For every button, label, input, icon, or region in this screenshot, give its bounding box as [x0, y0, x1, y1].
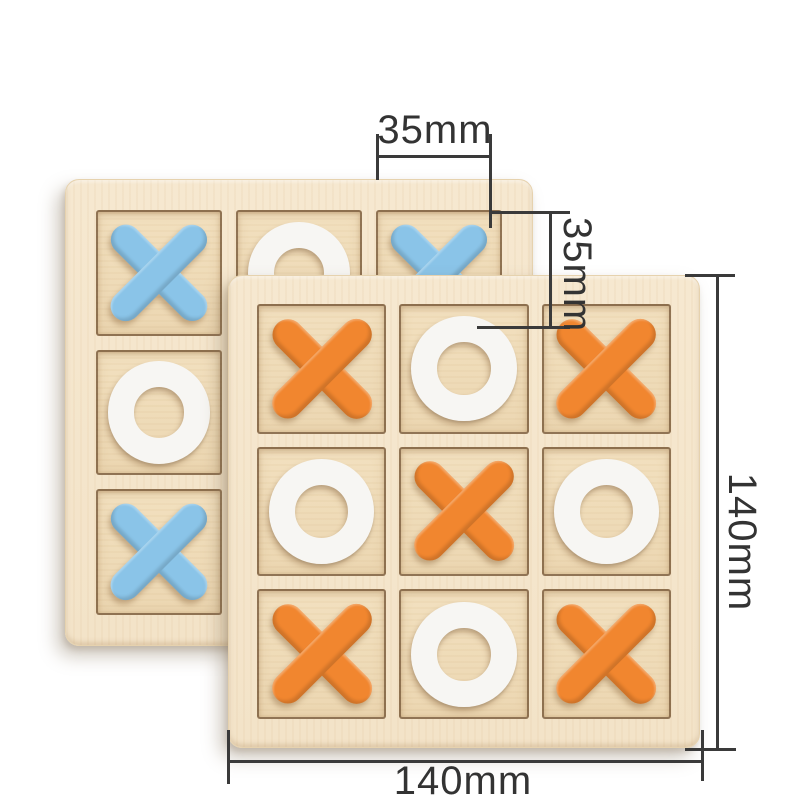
board-cell	[96, 210, 222, 336]
board-cell	[257, 589, 386, 719]
white-o-piece	[269, 459, 374, 564]
dim-width-tick-left	[227, 730, 230, 784]
dim-height-line	[716, 274, 719, 751]
x-orange-x-piece	[404, 451, 524, 572]
board-cell	[399, 589, 528, 719]
product-photo: 35mm 35mm 140mm 140mm	[0, 0, 800, 800]
dim-label-cell-height: 35mm	[557, 217, 597, 327]
x-orange-x-piece	[546, 594, 666, 715]
x-orange-x-piece	[262, 594, 382, 715]
dim-label-board-height: 140mm	[722, 472, 762, 612]
front-game-board	[228, 275, 700, 748]
board-cell	[542, 447, 671, 577]
dim-label-cell-width: 35mm	[345, 110, 525, 150]
white-o-piece	[108, 361, 210, 463]
board-cell	[96, 489, 222, 615]
board-cell	[542, 589, 671, 719]
board-cell	[399, 304, 528, 434]
dim-top-line	[376, 155, 492, 158]
white-o-piece	[554, 459, 659, 564]
dim-cellheight-tick-top	[489, 211, 570, 214]
x-blue-x-piece	[100, 494, 217, 611]
dim-height-tick-bottom	[685, 748, 736, 751]
dim-cellheight-line	[549, 211, 552, 329]
white-o-piece	[411, 602, 516, 707]
dim-height-tick-top	[685, 274, 735, 277]
board-cell	[257, 447, 386, 577]
dim-label-board-width: 140mm	[373, 762, 553, 800]
board-cell	[399, 447, 528, 577]
board-cell	[257, 304, 386, 434]
dim-width-tick-right	[701, 730, 704, 781]
white-o-piece	[411, 316, 516, 421]
x-orange-x-piece	[262, 309, 382, 430]
x-blue-x-piece	[100, 214, 217, 331]
board-cell	[96, 350, 222, 476]
